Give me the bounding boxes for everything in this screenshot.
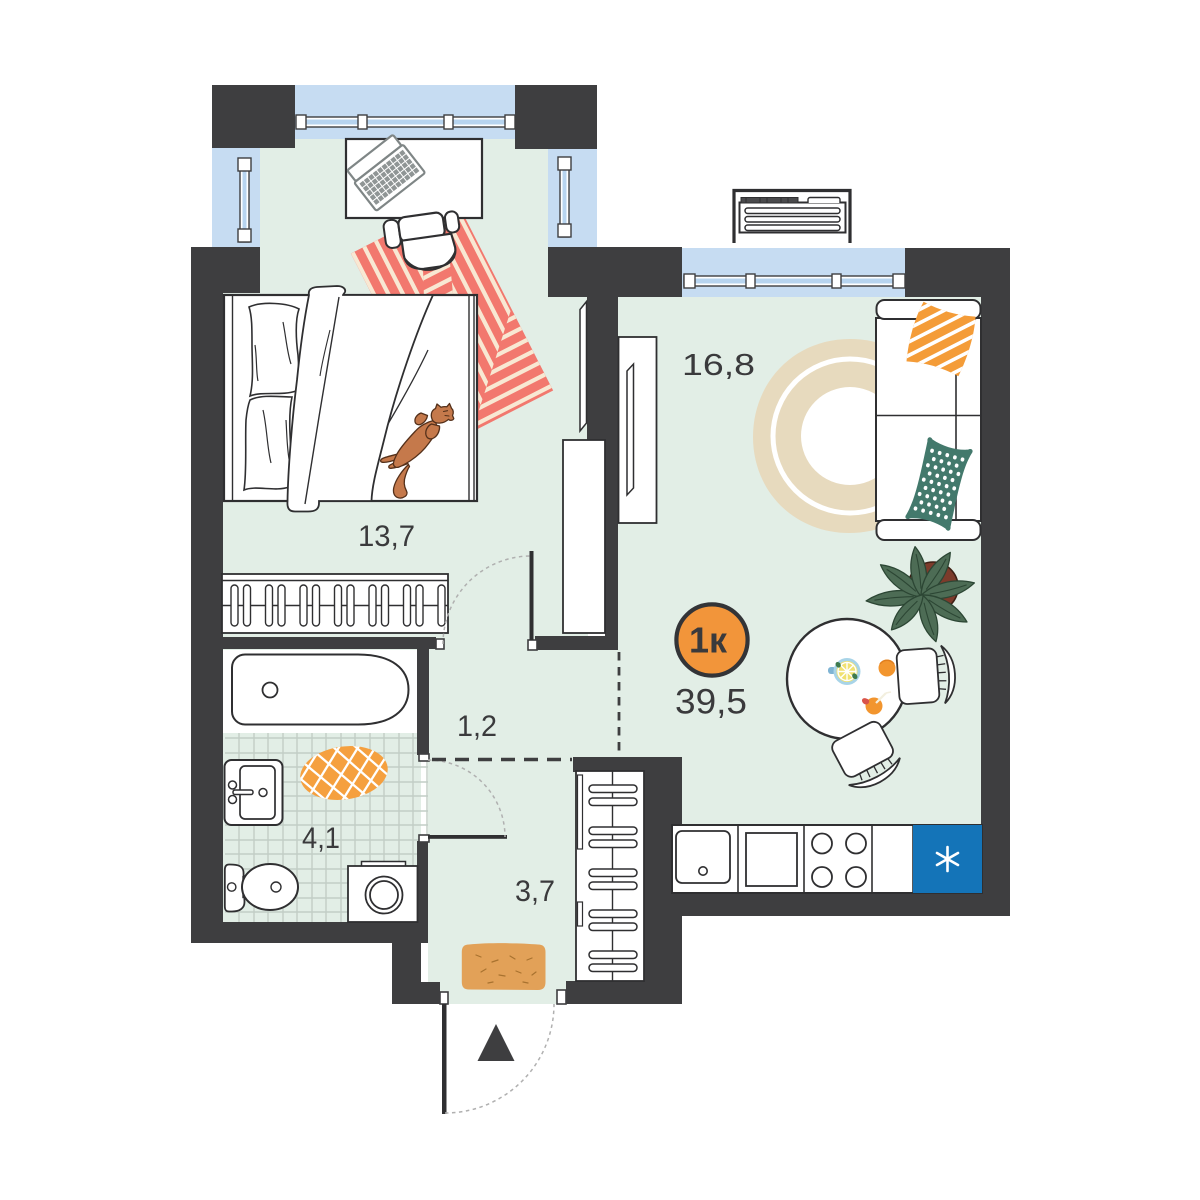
svg-text:16,8: 16,8 [682,347,755,382]
svg-text:1,2: 1,2 [457,710,497,743]
svg-text:3,7: 3,7 [515,875,555,908]
svg-text:4,1: 4,1 [302,822,340,855]
svg-text:13,7: 13,7 [358,520,415,553]
svg-text:1к: 1к [689,620,728,661]
svg-text:39,5: 39,5 [675,683,747,722]
